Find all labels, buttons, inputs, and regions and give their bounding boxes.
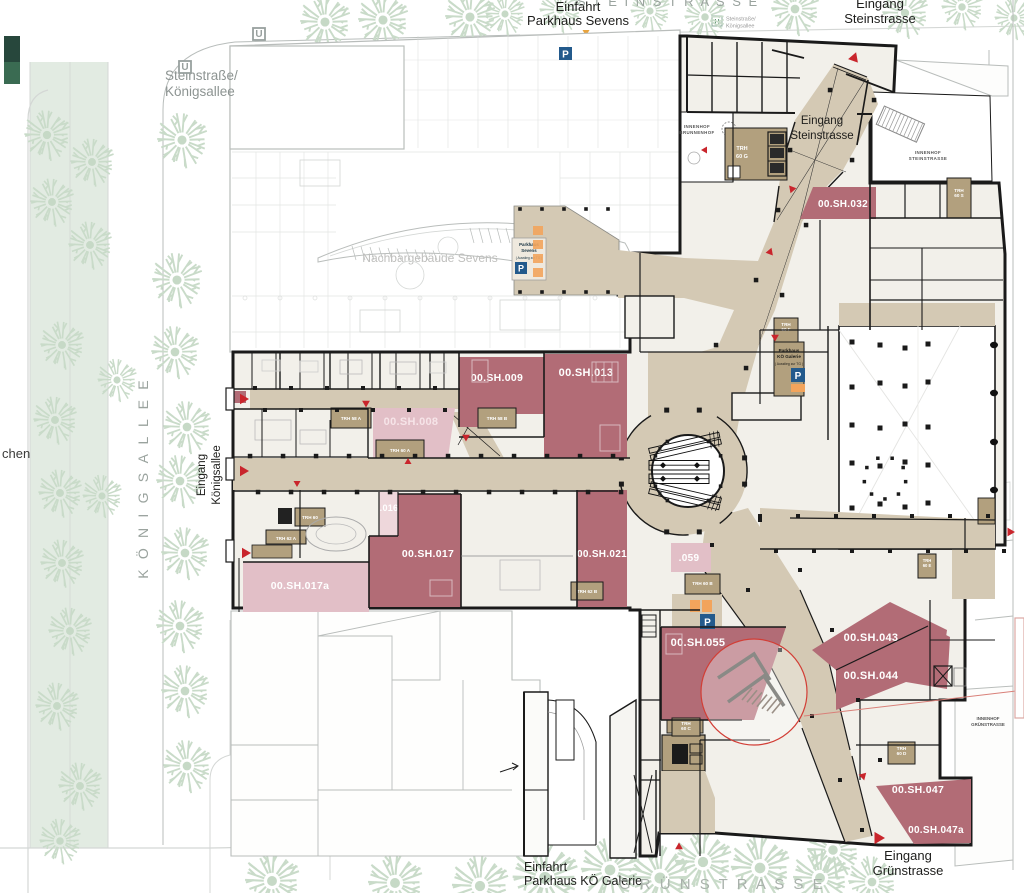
svg-text:00.SH.047a: 00.SH.047a (908, 825, 964, 836)
svg-text:S T E I N S T R A S S E: S T E I N S T R A S S E (577, 0, 759, 9)
svg-text:Königsallee: Königsallee (165, 84, 235, 99)
svg-text:Steinstrasse: Steinstrasse (844, 11, 916, 26)
svg-text:U: U (181, 62, 188, 73)
svg-text:INNENHOF: INNENHOF (977, 716, 1000, 721)
svg-text:Grünstrasse: Grünstrasse (873, 863, 944, 878)
svg-text:00.SH.032: 00.SH.032 (818, 199, 868, 210)
svg-text:00.SH.047: 00.SH.047 (892, 784, 944, 796)
svg-text:00.SH.013: 00.SH.013 (559, 367, 614, 379)
svg-text:.059: .059 (679, 553, 700, 564)
svg-text:60 E: 60 E (923, 563, 932, 568)
svg-text:00.SH.008: 00.SH.008 (384, 416, 439, 428)
svg-text:Königsallee: Königsallee (726, 24, 754, 30)
svg-text:STEINSTRASSE: STEINSTRASSE (909, 156, 947, 161)
svg-text:TRH 60 A: TRH 60 A (390, 448, 411, 453)
svg-text:INNENHOF: INNENHOF (684, 124, 710, 129)
svg-text:.016: .016 (380, 503, 399, 513)
svg-text:Eingang: Eingang (196, 454, 208, 496)
svg-text:Steinstraße/: Steinstraße/ (726, 17, 756, 23)
svg-text:00.SH.055: 00.SH.055 (671, 637, 726, 649)
svg-text:TRH 60: TRH 60 (302, 515, 318, 520)
svg-text:TRH 58 B: TRH 58 B (487, 416, 508, 421)
svg-text:GRÜNSTRASSE: GRÜNSTRASSE (971, 722, 1005, 727)
svg-text:G R Ü N S T R A S S E: G R Ü N S T R A S S E (619, 875, 825, 893)
svg-text:Steinstrasse: Steinstrasse (790, 130, 853, 142)
svg-text:60 S: 60 S (954, 193, 963, 198)
svg-text:P: P (518, 264, 524, 274)
svg-text:Parkhaus Sevens: Parkhaus Sevens (527, 13, 629, 28)
svg-text:BRUNNENHOF: BRUNNENHOF (679, 130, 714, 135)
svg-text:KÖ Galerie: KÖ Galerie (777, 353, 801, 359)
svg-text:Königsallee: Königsallee (211, 445, 223, 504)
svg-text:chen: chen (2, 446, 30, 461)
svg-text:60 D: 60 D (897, 751, 907, 756)
svg-text:Eingang: Eingang (801, 115, 843, 127)
svg-text:00.SH.017a: 00.SH.017a (271, 580, 329, 592)
svg-text:60 G: 60 G (736, 154, 748, 160)
svg-text:TRH 62 A: TRH 62 A (276, 536, 297, 541)
svg-text:Eingang: Eingang (884, 848, 932, 863)
svg-text:00.SH.044: 00.SH.044 (844, 670, 899, 682)
svg-text:P: P (795, 371, 802, 382)
svg-text:60 C: 60 C (681, 726, 691, 731)
svg-text:U: U (255, 29, 262, 40)
svg-text:TRH 62 B: TRH 62 B (577, 589, 598, 594)
svg-text:INNENHOF: INNENHOF (915, 150, 941, 155)
svg-text:TRH 58 A: TRH 58 A (341, 416, 362, 421)
svg-text:Eingang: Eingang (856, 0, 904, 11)
svg-text:00.SH.021: 00.SH.021 (577, 549, 627, 560)
svg-text:TRH: TRH (736, 146, 747, 152)
svg-text:K Ö N I G S A L L E E: K Ö N I G S A L L E E (134, 377, 151, 579)
svg-text:P: P (562, 50, 569, 61)
svg-text:Einfahrt: Einfahrt (524, 860, 568, 874)
svg-text:00.SH.043: 00.SH.043 (844, 632, 899, 644)
svg-text:Nachbargebäude Sevens: Nachbargebäude Sevens (362, 251, 497, 265)
svg-text:00.SH.017: 00.SH.017 (402, 548, 454, 560)
svg-text:( Ausstieg zur TG ): ( Ausstieg zur TG ) (775, 362, 803, 366)
svg-text:TRH 60 B: TRH 60 B (692, 581, 713, 586)
svg-text:Steinstraße/: Steinstraße/ (165, 68, 238, 83)
